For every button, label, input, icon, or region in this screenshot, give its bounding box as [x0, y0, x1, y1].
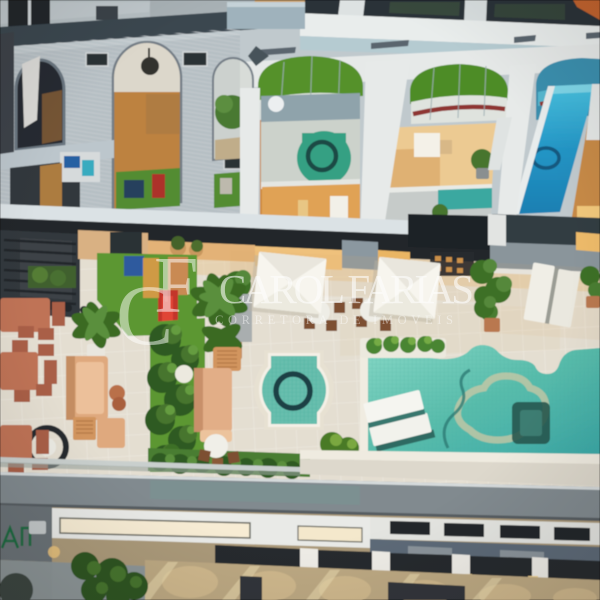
svg-text:CAROL FARIAS: CAROL FARIAS [219, 266, 474, 312]
svg-text:F: F [154, 242, 199, 330]
